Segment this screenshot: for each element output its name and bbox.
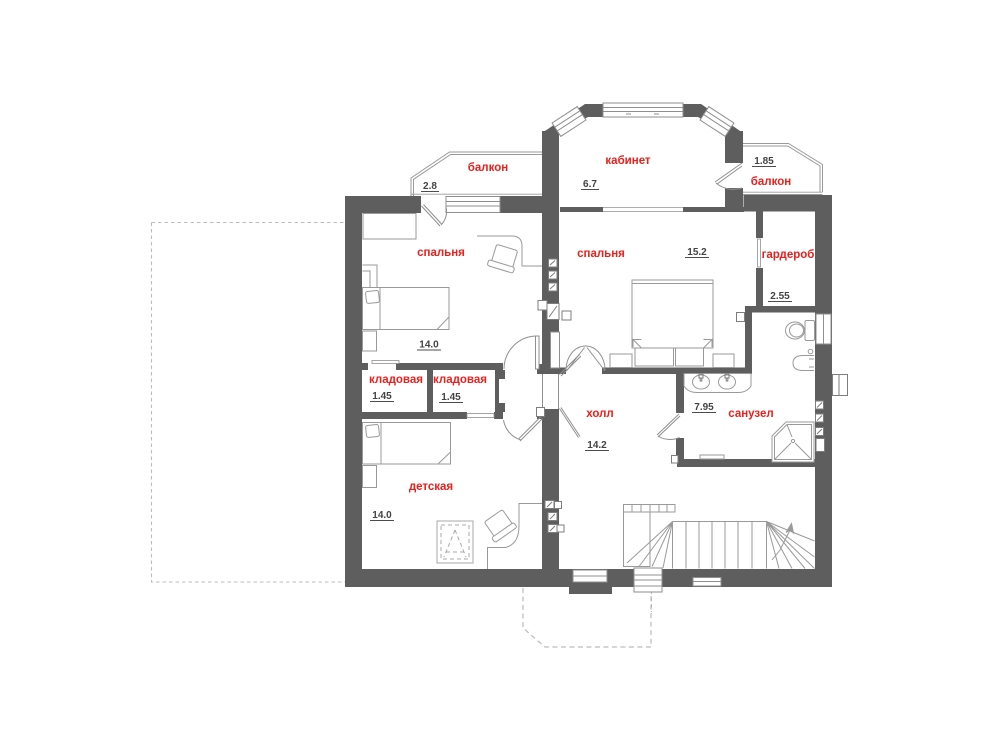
svg-text:1.85: 1.85 [754, 156, 774, 167]
svg-text:кабинет: кабинет [605, 155, 651, 167]
svg-text:1.45: 1.45 [372, 391, 392, 402]
svg-text:2.55: 2.55 [770, 291, 790, 302]
svg-text:кладовая: кладовая [369, 374, 423, 386]
svg-text:балкон: балкон [468, 162, 508, 174]
svg-text:7.95: 7.95 [694, 402, 714, 413]
svg-text:холл: холл [586, 408, 613, 420]
svg-text:14.0: 14.0 [419, 340, 439, 351]
svg-text:спальня: спальня [417, 247, 465, 259]
svg-text:2.8: 2.8 [423, 181, 437, 192]
svg-text:6.7: 6.7 [583, 179, 597, 190]
svg-text:15.2: 15.2 [687, 247, 707, 258]
svg-text:кладовая: кладовая [433, 374, 487, 386]
svg-text:санузел: санузел [728, 408, 773, 420]
svg-text:детская: детская [409, 481, 453, 493]
svg-text:гардероб: гардероб [762, 249, 815, 261]
svg-text:14.0: 14.0 [372, 510, 392, 521]
svg-text:спальня: спальня [577, 248, 625, 260]
svg-text:14.2: 14.2 [587, 440, 607, 451]
svg-text:1.45: 1.45 [441, 392, 461, 403]
svg-text:балкон: балкон [751, 176, 791, 188]
